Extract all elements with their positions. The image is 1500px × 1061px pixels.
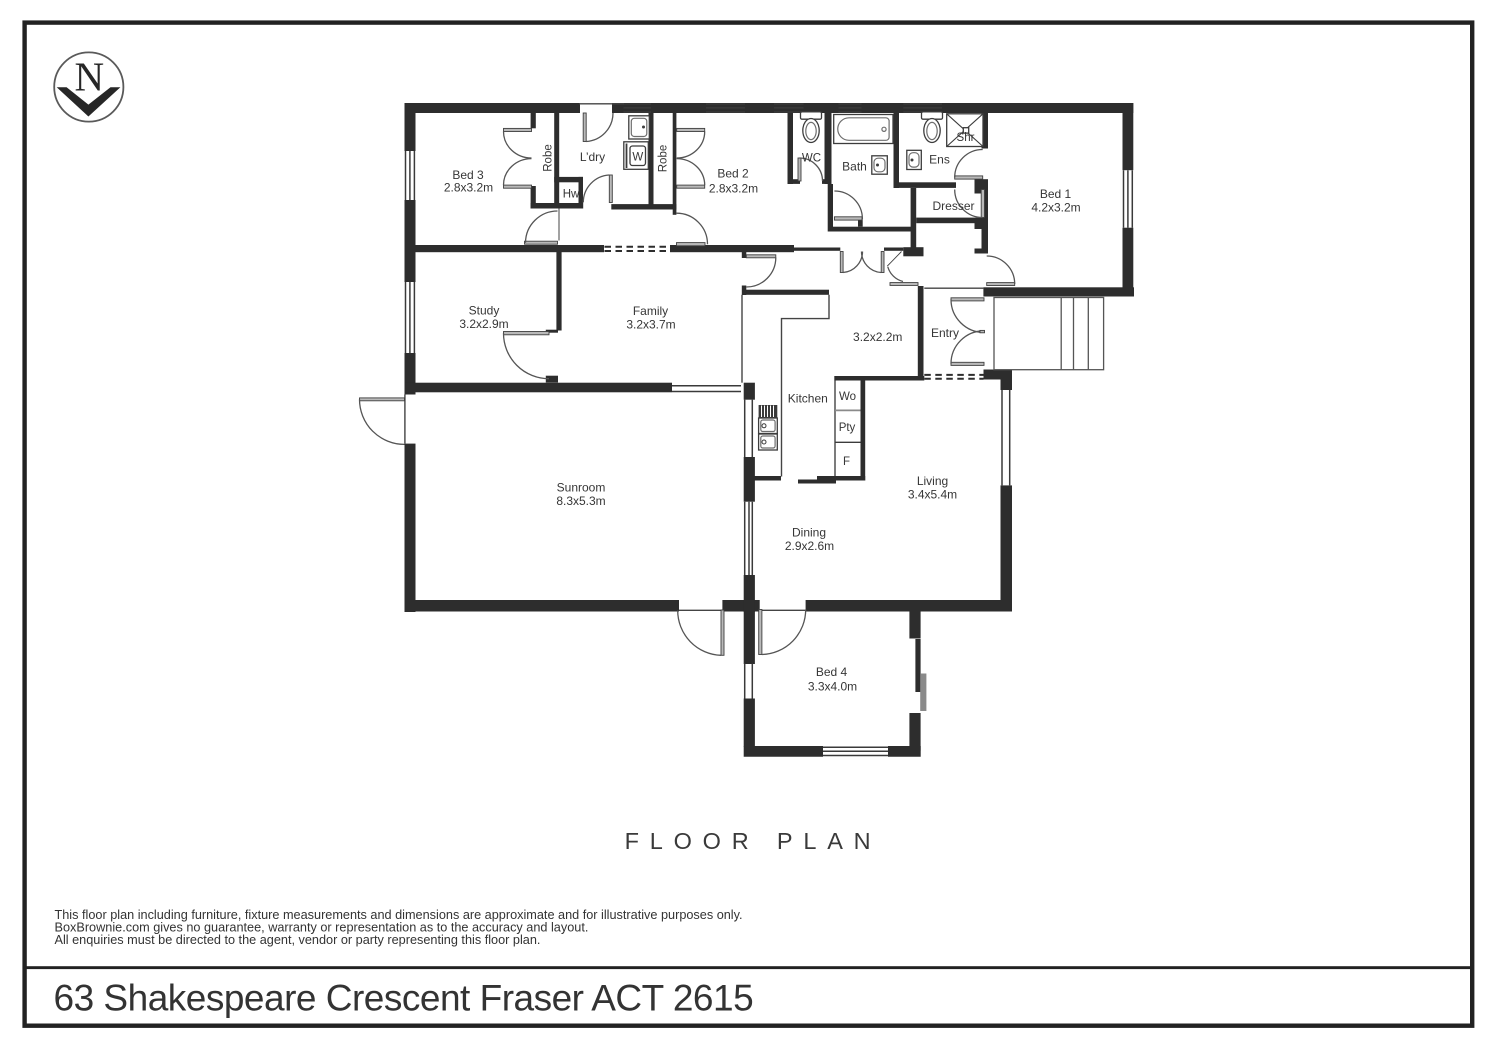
svg-text:3.3x4.0m: 3.3x4.0m — [808, 680, 857, 694]
svg-text:All enquiries must be directed: All enquiries must be directed to the ag… — [55, 933, 541, 947]
svg-text:8.3x5.3m: 8.3x5.3m — [556, 494, 605, 508]
svg-text:W: W — [632, 152, 643, 164]
svg-text:4.2x3.2m: 4.2x3.2m — [1031, 201, 1080, 215]
svg-text:Family: Family — [633, 304, 668, 318]
svg-text:2.8x3.2m: 2.8x3.2m — [444, 181, 493, 195]
svg-text:Bath: Bath — [842, 160, 867, 174]
svg-text:Study: Study — [469, 304, 500, 318]
svg-text:2.8x3.2m: 2.8x3.2m — [709, 182, 758, 196]
svg-text:3.2x3.7m: 3.2x3.7m — [626, 318, 675, 332]
svg-text:Wo: Wo — [839, 391, 856, 403]
svg-text:Pty: Pty — [839, 422, 856, 434]
svg-text:Shr: Shr — [957, 132, 975, 144]
svg-text:3.4x5.4m: 3.4x5.4m — [908, 488, 957, 502]
svg-text:Hw: Hw — [563, 189, 580, 201]
svg-text:63 Shakespeare Crescent Fraser: 63 Shakespeare Crescent Fraser ACT 2615 — [54, 978, 754, 1019]
svg-text:3.2x2.9m: 3.2x2.9m — [459, 317, 508, 331]
svg-text:Bed 2: Bed 2 — [717, 167, 749, 181]
svg-text:Dresser: Dresser — [932, 199, 974, 213]
svg-text:Kitchen: Kitchen — [788, 392, 828, 406]
svg-text:Living: Living — [917, 474, 948, 488]
svg-text:Robe: Robe — [658, 145, 670, 173]
svg-text:F: F — [843, 456, 850, 468]
svg-text:Dining: Dining — [792, 526, 826, 540]
svg-text:Ens: Ens — [929, 153, 950, 167]
svg-text:WC: WC — [802, 153, 821, 165]
svg-text:Bed 1: Bed 1 — [1040, 187, 1072, 201]
svg-text:3.2x2.2m: 3.2x2.2m — [853, 330, 902, 344]
svg-text:L’dry: L’dry — [580, 150, 605, 164]
svg-text:N: N — [74, 54, 104, 100]
svg-text:Robe: Robe — [543, 144, 555, 172]
svg-text:Entry: Entry — [931, 326, 959, 340]
svg-text:2.9x2.6m: 2.9x2.6m — [785, 539, 834, 553]
svg-text:FLOOR PLAN: FLOOR PLAN — [625, 828, 882, 854]
svg-text:Sunroom: Sunroom — [557, 481, 606, 495]
svg-text:Bed 4: Bed 4 — [816, 665, 848, 679]
